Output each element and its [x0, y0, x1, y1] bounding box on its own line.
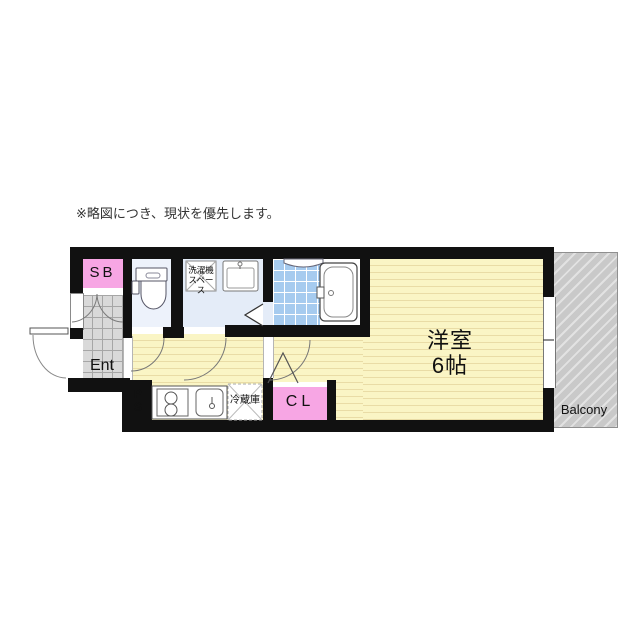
wall-sanitary-bottom-b — [163, 327, 184, 338]
room-door-opening — [263, 337, 274, 378]
entrance-door-leaf — [30, 328, 68, 334]
bathroom-tile-floor — [273, 259, 320, 325]
balcony-label: Balcony — [553, 403, 615, 417]
shoe-box-label: SB — [82, 265, 123, 281]
entrance-label: Ent — [80, 358, 124, 375]
main-room-name: 洋室 — [390, 328, 510, 353]
balcony-window — [543, 297, 556, 388]
wall-washroom-bathroom — [263, 252, 273, 302]
pipe-space-label: P S — [128, 388, 148, 414]
shoe-box-strip — [82, 288, 123, 295]
wall-entrance-bottom — [68, 378, 130, 392]
wall-toilet-washroom — [171, 252, 183, 334]
left-window — [70, 293, 84, 330]
entrance-door — [30, 328, 68, 378]
main-room-size: 6帖 — [390, 353, 510, 378]
pipe-space-label-s: S — [128, 401, 148, 414]
wall-right-upper — [543, 247, 554, 297]
washer-space-label: 洗濯機 スペース — [186, 266, 216, 295]
wall-closet-right — [327, 380, 336, 422]
closet-label: CL — [273, 394, 327, 411]
closet-top-strip — [273, 382, 327, 387]
floorplan-canvas: ※略図につき、現状を優先します。 — [0, 0, 640, 640]
washer-label-line2: スペース — [186, 276, 216, 296]
fridge-label: 冷蔵庫 — [227, 396, 263, 407]
main-room-label: 洋室 6帖 — [390, 328, 510, 379]
wall-sanitary-bottom-a — [123, 327, 132, 338]
wall-bottom — [122, 420, 554, 432]
wall-entrance-toilet — [123, 252, 132, 334]
toilet-room-floor — [131, 259, 171, 327]
wall-bathroom-bottom — [263, 325, 370, 337]
bathtub-zone — [320, 259, 360, 325]
wall-left-stub — [70, 328, 83, 339]
entrance-hall-threshold — [123, 336, 133, 380]
wall-top — [72, 247, 554, 259]
wall-closet-left — [263, 378, 273, 428]
disclaimer-note: ※略図につき、現状を優先します。 — [76, 203, 280, 222]
